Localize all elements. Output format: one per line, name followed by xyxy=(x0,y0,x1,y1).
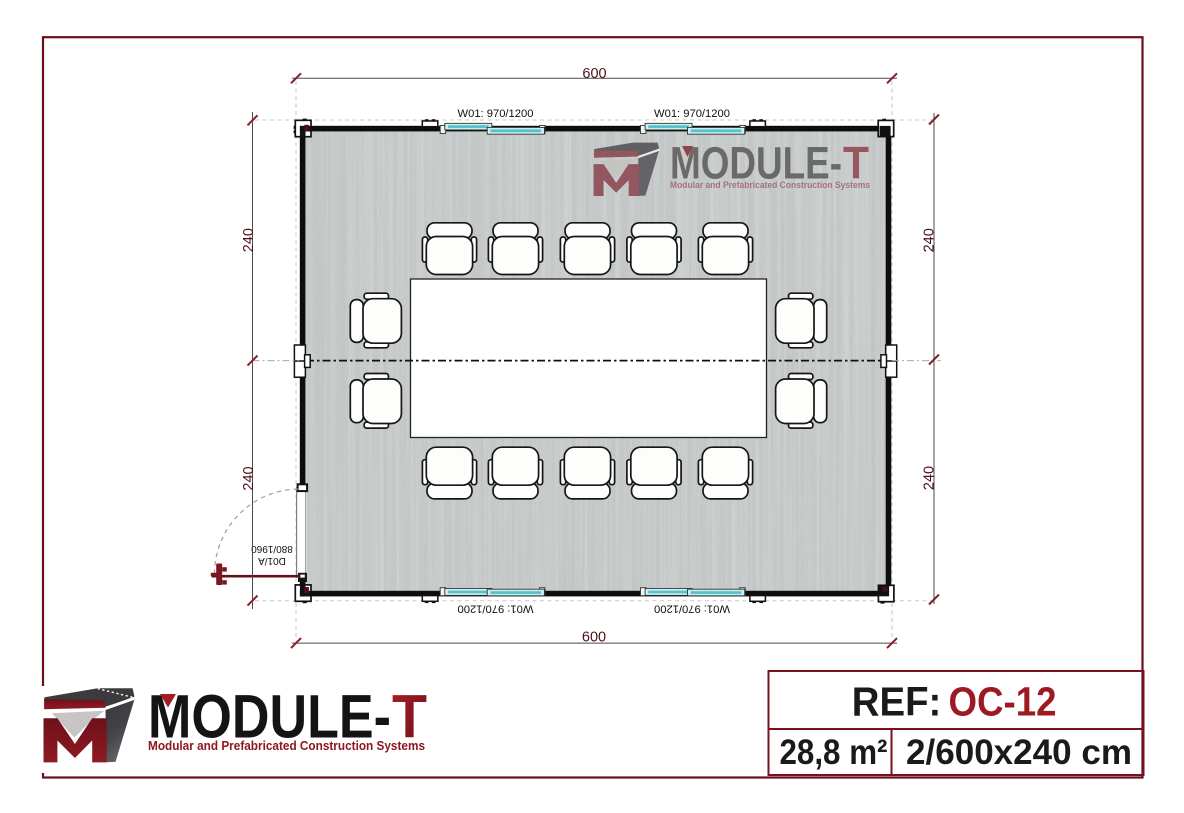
svg-text:240: 240 xyxy=(241,466,257,490)
svg-text:D01/A: D01/A xyxy=(258,555,286,566)
svg-text:W01: 970/1200: W01: 970/1200 xyxy=(458,603,534,615)
svg-text:W01: 970/1200: W01: 970/1200 xyxy=(654,603,730,615)
svg-text:240: 240 xyxy=(922,228,938,252)
svg-text:600: 600 xyxy=(582,66,606,82)
svg-text:W01: 970/1200: W01: 970/1200 xyxy=(458,108,534,120)
svg-text:240: 240 xyxy=(241,228,257,252)
svg-text:Modular and Prefabricated Cons: Modular and Prefabricated Construction S… xyxy=(148,739,425,753)
svg-text:2/600x240 cm: 2/600x240 cm xyxy=(906,733,1132,772)
svg-text:W01: 970/1200: W01: 970/1200 xyxy=(654,108,730,120)
svg-text:600: 600 xyxy=(582,630,606,646)
svg-text:OC-12: OC-12 xyxy=(949,679,1057,725)
svg-text:28,8 m²: 28,8 m² xyxy=(780,733,888,772)
svg-text:REF:: REF: xyxy=(852,679,942,725)
svg-text:240: 240 xyxy=(922,466,938,490)
svg-text:Modular and Prefabricated Cons: Modular and Prefabricated Construction S… xyxy=(670,180,870,190)
svg-text:880/1960: 880/1960 xyxy=(251,543,293,554)
